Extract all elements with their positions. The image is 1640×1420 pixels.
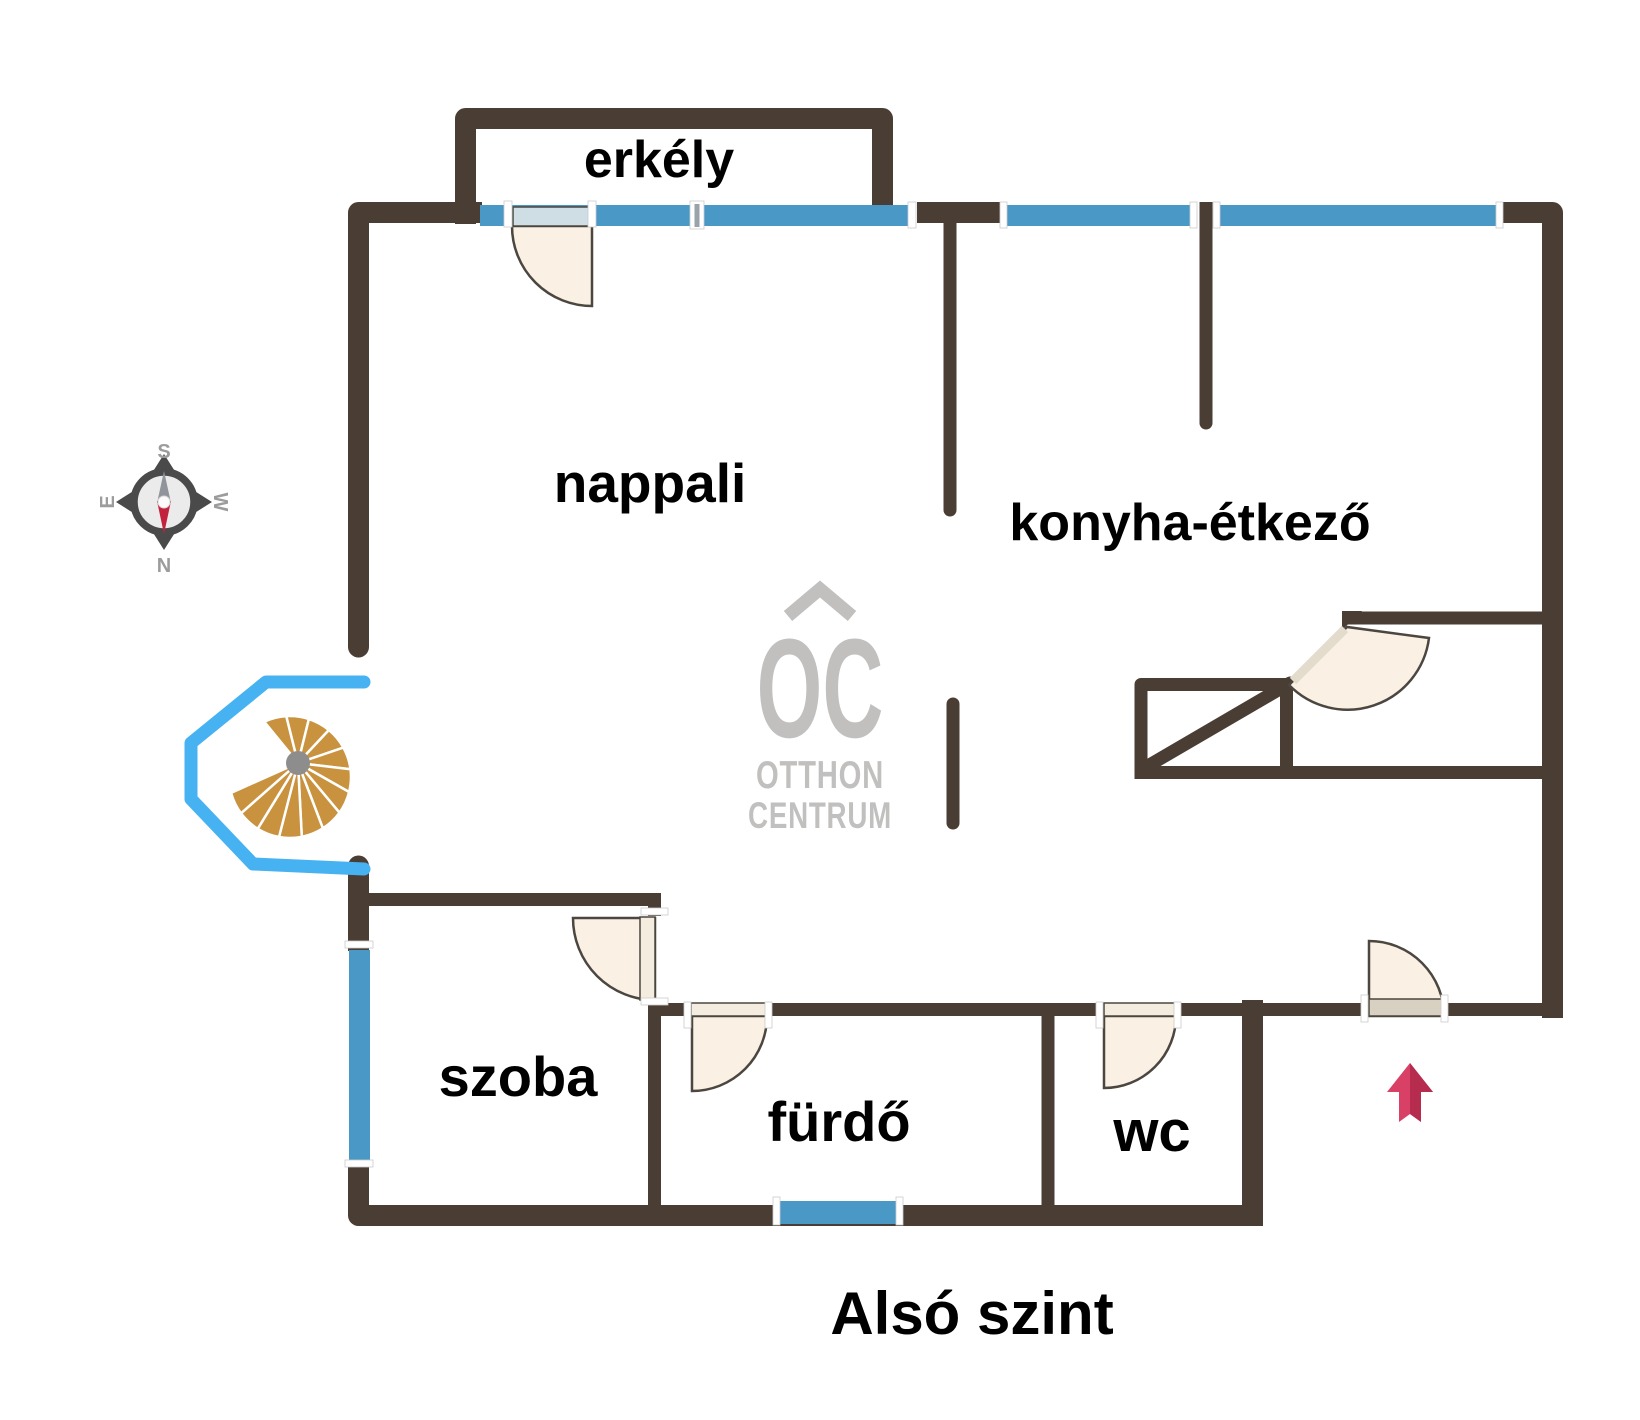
window-bracket <box>1190 202 1197 228</box>
window-bracket <box>1496 202 1503 228</box>
wall-end-cap <box>348 637 369 658</box>
window-bracket <box>1000 202 1007 228</box>
otthon-centrum-watermark: OC OTTHON CENTRUM <box>748 589 892 836</box>
door-bracket <box>765 1002 772 1028</box>
logo-monogram: OC <box>757 610 884 768</box>
compass-icon: S N E W <box>97 441 231 577</box>
floor-plan-canvas: OC OTTHON CENTRUM erkély nappali konyha-… <box>0 0 1640 1420</box>
spiral-staircase-steps <box>231 716 351 838</box>
door-bracket <box>641 908 668 915</box>
window-bracket <box>908 202 916 228</box>
window-bathroom-bottom <box>780 1201 897 1224</box>
floor-plan-page: OC OTTHON CENTRUM erkély nappali konyha-… <box>0 0 1640 1420</box>
window-bracket <box>773 1197 780 1225</box>
wall-top-left <box>359 213 483 648</box>
compass-label-north: N <box>157 555 171 577</box>
compass-label-south: S <box>157 441 170 463</box>
window-szoba-left <box>349 950 370 1162</box>
wall-end-cap <box>944 504 957 517</box>
entrance-arrow-shade <box>1410 1063 1433 1122</box>
entrance-door-leaf <box>1369 999 1444 1016</box>
balcony-door-leaf <box>513 207 592 226</box>
label-konyha-etkezo: konyha-étkező <box>1009 494 1370 552</box>
window-bracket <box>1213 202 1220 228</box>
window-bracket <box>345 1160 373 1167</box>
wc-door-swing <box>1104 1016 1176 1088</box>
door-bracket <box>641 998 668 1005</box>
room-labels: erkély nappali konyha-étkező szoba fürdő… <box>439 131 1371 1347</box>
wall-end-cap <box>1200 417 1213 430</box>
door-bracket <box>1096 1002 1103 1028</box>
bathroom-door-leaf <box>691 1003 767 1016</box>
window-bracket <box>896 1197 903 1225</box>
stair-closet-diagonal <box>1146 683 1290 767</box>
compass-label-east: E <box>97 495 119 508</box>
balcony-door-swing <box>512 226 592 306</box>
door-bracket <box>588 201 596 227</box>
szoba-door-leaf <box>640 917 655 1000</box>
door-bracket <box>684 1002 691 1028</box>
wc-door-leaf <box>1104 1003 1176 1016</box>
level-title: Alsó szint <box>830 1280 1113 1347</box>
doors <box>512 207 1444 1091</box>
door-bracket <box>1361 995 1368 1022</box>
logo-line2: CENTRUM <box>748 794 892 836</box>
label-wc: wc <box>1112 1099 1190 1164</box>
label-erkely: erkély <box>584 131 734 189</box>
bay-window-spiral-stair <box>191 682 364 869</box>
window-kitchen-2 <box>1220 205 1497 226</box>
entrance-arrow-icon <box>1387 1063 1433 1122</box>
label-nappali: nappali <box>554 452 747 514</box>
logo-line1: OTTHON <box>756 754 884 797</box>
label-szoba: szoba <box>439 1045 599 1108</box>
door-bracket <box>1174 1002 1181 1028</box>
window-mullion-bar <box>695 204 700 227</box>
window-bracket <box>345 941 373 948</box>
compass-label-west: W <box>209 493 231 512</box>
label-furdo: fürdő <box>767 1090 910 1153</box>
bathroom-door-swing <box>692 1016 767 1091</box>
compass-pivot <box>158 496 170 508</box>
window-kitchen-1 <box>1007 205 1190 226</box>
door-bracket <box>504 201 512 227</box>
door-bracket <box>1441 995 1448 1022</box>
spiral-staircase-hub <box>286 751 310 775</box>
